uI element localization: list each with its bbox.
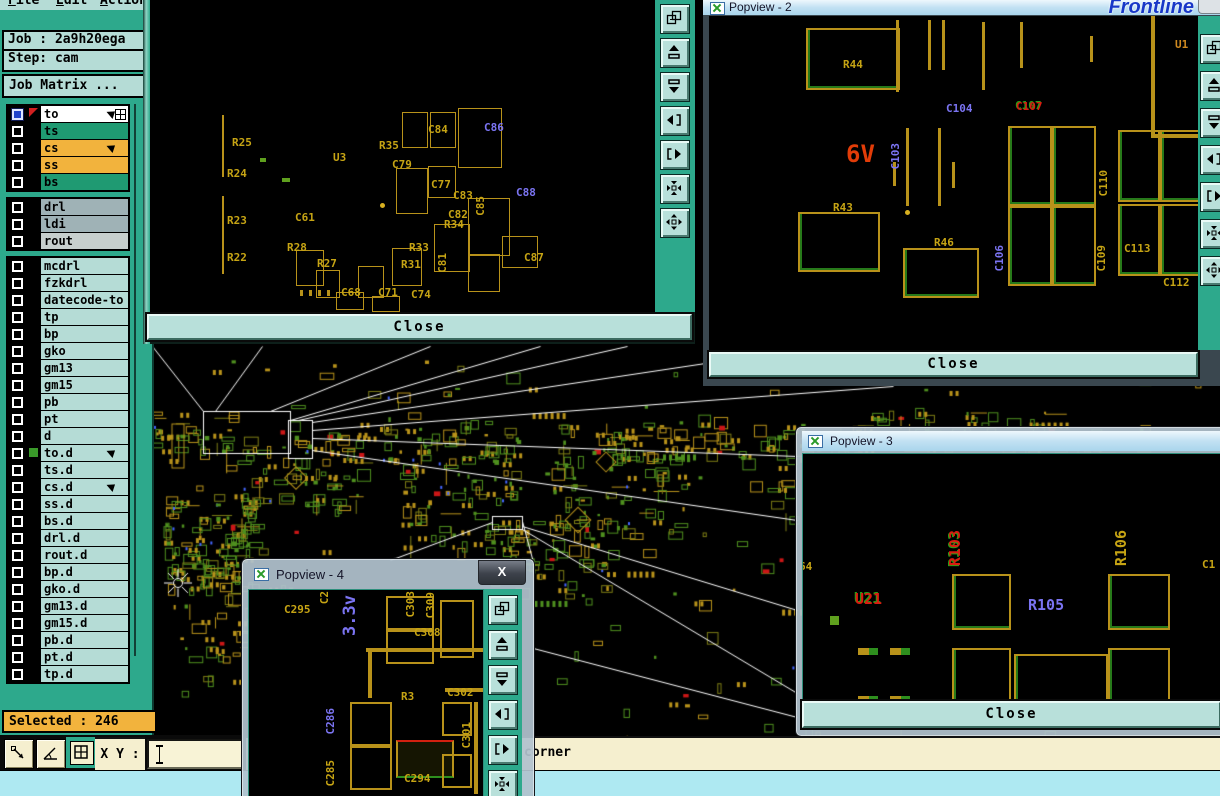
layer-checkbox[interactable] [8,292,27,308]
pan-right-icon [493,740,511,758]
pcb-shape [905,210,910,215]
popview-1-close-button[interactable]: Close [147,314,692,340]
pcb-shape [222,115,224,177]
menu-bar: File Edit Action [0,0,152,10]
copy-window-icon [665,9,683,27]
layer-checkbox[interactable] [8,649,27,665]
layer-checkbox[interactable] [8,530,27,546]
layer-checkbox[interactable] [8,140,27,156]
job-matrix-button[interactable]: Job Matrix ... [2,74,157,98]
layer-checkbox[interactable] [8,157,27,173]
pcb-label: C104 [946,102,973,115]
layer-checkbox[interactable] [8,598,27,614]
layer-name: tp.d [40,666,128,682]
layer-indicator [27,598,40,614]
popview-1-toolbar [655,0,695,312]
layer-checkbox[interactable] [8,428,27,444]
layer-name: ss.d [40,496,128,512]
layer-row-drl[interactable]: drl [8,199,128,216]
zoom-contract-button[interactable] [660,174,690,204]
layer-checkbox[interactable] [8,343,27,359]
pcb-shape [442,754,472,788]
layer-row-gko[interactable]: gko [8,343,128,360]
pcb-label: R22 [227,251,247,264]
layer-checkbox[interactable] [8,615,27,631]
pcb-shape [1160,130,1198,202]
pan-down-button[interactable] [488,665,518,695]
layer-row-tp[interactable]: tp [8,309,128,326]
layer-checkbox[interactable] [8,547,27,563]
layer-indicator [27,199,40,215]
pcb-shape [1014,654,1108,701]
pcb-shape [982,22,985,90]
layer-name: cs [40,140,128,156]
pcb-shape [309,290,312,296]
layer-indicator [27,377,40,393]
grid-icon [115,109,126,120]
layer-indicator [27,479,40,495]
layer-indicator [27,649,40,665]
pcb-shape [896,20,899,92]
pcb-label: 3.3v [340,595,360,636]
layer-checkbox[interactable] [8,216,27,232]
pcb-label: C106 [993,245,1006,272]
pan-right-button[interactable] [660,140,690,170]
window-icon [254,568,269,581]
message-bar [0,770,1220,796]
layer-row-datecode-to[interactable]: datecode-to [8,292,128,309]
copy-window-button[interactable] [660,4,690,34]
layer-row-drl.d[interactable]: drl.d [8,530,128,547]
popview-4-toolbar [484,589,522,796]
layer-name: bp.d [40,564,128,580]
popview-3-canvas[interactable]: 64U21R103R105R106C1 [802,453,1220,701]
layer-indicator [27,360,40,376]
layer-name: datecode-to [40,292,128,308]
layer-row-gm15.d[interactable]: gm15.d [8,615,128,632]
layer-row-ss[interactable]: ss [8,157,128,174]
layer-row-tp.d[interactable]: tp.d [8,666,128,682]
pcb-shape [942,20,945,70]
layer-indicator [27,411,40,427]
layer-name: drl.d [40,530,128,546]
pcb-label: C71 [378,286,398,299]
layer-name: pb [40,394,128,410]
measure-angle-icon [41,744,59,762]
pan-up-icon [665,43,683,61]
layer-row-ldi[interactable]: ldi [8,216,128,233]
pcb-label: C86 [484,121,504,134]
layer-name: gko.d [40,581,128,597]
pcb-label: R35 [379,139,399,152]
layer-name: cs.d [40,479,128,495]
layer-checkbox[interactable] [8,377,27,393]
layer-checkbox[interactable] [8,496,27,512]
pcb-shape [1118,204,1160,276]
layer-row-rout[interactable]: rout [8,233,128,249]
pcb-shape [350,746,392,790]
pan-left-button[interactable] [1200,145,1220,175]
popview-2-title: Popview - 2 [729,0,792,14]
layer-group: totscsssbs [6,104,130,192]
popview-4-canvas[interactable]: C2C295C303C309C3083.3vR3C302C286C301C285… [248,589,484,796]
pan-up-button[interactable] [660,38,690,68]
layer-name: pt.d [40,649,128,665]
layer-checkbox[interactable] [8,632,27,648]
pcb-label: 64 [802,560,812,573]
layer-row-bp.d[interactable]: bp.d [8,564,128,581]
pcb-shape [222,196,224,274]
pcb-label: R28 [287,241,307,254]
quad-view-button[interactable] [66,737,96,768]
pan-down-button[interactable] [1200,108,1220,138]
pcb-label: C2 [318,591,331,604]
layer-indicator [27,216,40,232]
layer-name: rout.d [40,547,128,563]
popview-3-titlebar[interactable]: Popview - 3 [802,431,1220,451]
popview-2-titlebar[interactable]: Popview - 2 Frontline [703,0,1220,15]
layer-row-ts[interactable]: ts [8,123,128,140]
layer-row-cs.d[interactable]: cs.d [8,479,128,496]
pcb-label: C61 [295,211,315,224]
layer-indicator [27,615,40,631]
layer-checkbox[interactable] [8,445,27,461]
xy-input[interactable] [147,739,243,769]
pcb-shape [1160,204,1198,276]
pcb-label: R25 [232,136,252,149]
window-corner-button[interactable] [1198,0,1220,14]
layer-checkbox[interactable] [8,326,27,342]
list-divider [134,104,136,656]
layer-row-bp[interactable]: bp [8,326,128,343]
layer-name: bs [40,174,128,190]
pcb-shape [458,108,502,168]
layer-name: rout [40,233,128,249]
layer-row-to[interactable]: to [8,106,128,123]
pan-up-button[interactable] [1200,71,1220,101]
pcb-shape [1020,22,1023,68]
pcb-shape [798,212,880,272]
pan-up-button[interactable] [488,630,518,660]
pcb-shape [1052,126,1096,206]
layer-indicator [27,564,40,580]
quad-view-icon [72,743,90,761]
pcb-label: C83 [453,189,473,202]
layer-indicator [27,462,40,478]
pcb-shape [906,128,909,206]
layer-indicator [27,666,40,682]
zoom-contract-icon [665,179,683,197]
pcb-label: C85 [474,196,487,216]
popview-1-window: R25R24R23R22R28R27C61C68U3R35C84C86C79C7… [143,0,695,344]
layer-row-fzkdrl[interactable]: fzkdrl [8,275,128,292]
pcb-shape [468,254,500,292]
pcb-shape [903,248,979,298]
zoom-contract-button[interactable] [488,770,518,796]
layer-name: bs.d [40,513,128,529]
popview-4-titlebar[interactable]: Popview - 4 [248,563,474,587]
menu-action[interactable]: Action [100,0,147,8]
pcb-label: C107 [1016,100,1043,113]
pan-left-button[interactable] [488,700,518,730]
pcb-label: R31 [401,258,421,271]
popview-3-close-button[interactable]: Close [802,701,1220,728]
measure-distance-button[interactable] [4,739,34,769]
layer-checkbox[interactable] [8,479,27,495]
layer-name: gm13.d [40,598,128,614]
pcb-label: C303 [404,591,417,618]
pcb-shape [1151,134,1198,138]
pcb-label: R33 [409,241,429,254]
layer-indicator [27,581,40,597]
layer-name: mcdrl [40,258,128,274]
text-caret [156,745,163,764]
layer-row-pt[interactable]: pt [8,411,128,428]
layer-indicator [27,309,40,325]
pcb-shape [282,178,290,182]
copy-window-button[interactable] [488,595,518,625]
window-icon [710,2,725,15]
pcb-shape [396,168,428,214]
copy-window-icon [1205,39,1220,57]
sidebar: File Edit Action Job : 2a9h20ega Step: c… [0,0,154,796]
layer-checkbox[interactable] [8,309,27,325]
layer-row-ts.d[interactable]: ts.d [8,462,128,479]
layer-row-pb.d[interactable]: pb.d [8,632,128,649]
menu-file[interactable]: File [8,0,39,8]
layer-name: ss [40,157,128,173]
pcb-label: R23 [227,214,247,227]
pcb-label: C88 [516,186,536,199]
popview-2-close-button[interactable]: Close [709,352,1198,377]
pcb-label: C294 [404,772,431,785]
pcb-label: R24 [227,167,247,180]
pan-left-icon [1205,150,1220,168]
pcb-label: C112 [1163,276,1190,289]
layer-checkbox[interactable] [8,411,27,427]
layer-checkbox[interactable] [8,199,27,215]
pcb-shape [327,290,330,296]
pcb-label: C74 [411,288,431,301]
zoom-expand-button[interactable] [1200,256,1220,286]
pan-right-button[interactable] [1200,182,1220,212]
job-panel: Job : 2a9h20ega Step: cam [2,30,154,72]
hand-icon [105,448,115,458]
layer-name: gm13 [40,360,128,376]
layer-row-bs[interactable]: bs [8,174,128,190]
pan-down-icon [1205,113,1220,131]
layer-name: tp [40,309,128,325]
window-border [143,0,150,344]
layer-row-rout.d[interactable]: rout.d [8,547,128,564]
pan-left-button[interactable] [660,106,690,136]
pcb-label: R34 [444,218,464,231]
pan-down-icon [665,77,683,95]
pcb-label: 6V [846,140,875,168]
zoom-contract-button[interactable] [1200,219,1220,249]
hand-icon [105,109,115,119]
layer-group: drlldirout [6,197,130,251]
layer-indicator [27,292,40,308]
layer-checkbox[interactable] [8,123,27,139]
layer-name: fzkdrl [40,275,128,291]
pan-up-icon [1205,76,1220,94]
pcb-label: R103 [946,530,964,566]
layer-checkbox[interactable] [8,174,27,190]
pcb-shape [928,20,931,70]
pcb-label: U3 [333,151,346,164]
layer-row-gm13.d[interactable]: gm13.d [8,598,128,615]
layer-name: ts.d [40,462,128,478]
zoom-expand-button[interactable] [660,208,690,238]
pan-down-button[interactable] [660,72,690,102]
pcb-label: C285 [324,760,337,787]
layer-indicator [27,632,40,648]
pcb-label: C309 [424,592,437,619]
layer-name: pt [40,411,128,427]
measure-distance-icon [9,744,27,762]
layer-row-pb[interactable]: pb [8,394,128,411]
pcb-shape [1108,574,1170,630]
layer-name: gko [40,343,128,359]
hand-icon [105,143,115,153]
zoom-contract-icon [493,775,511,793]
layer-checkbox[interactable] [8,275,27,291]
copy-window-button[interactable] [1200,34,1220,64]
layer-indicator [27,106,40,122]
layer-checkbox[interactable] [8,513,27,529]
xy-label: X Y : [95,737,145,772]
pcb-label: C109 [1095,245,1108,272]
pan-right-icon [665,145,683,163]
layer-row-cs[interactable]: cs [8,140,128,157]
pcb-shape [402,112,428,148]
pcb-label: R44 [843,58,863,71]
layer-row-pt.d[interactable]: pt.d [8,649,128,666]
pcb-shape [1090,36,1093,62]
popview-3-window: Popview - 3 64U21R103R105R106C1 Close [795,426,1220,737]
layer-indicator [27,547,40,563]
layer-checkbox[interactable] [8,581,27,597]
job-name: Job : 2a9h20ega [4,32,152,51]
layer-row-ss.d[interactable]: ss.d [8,496,128,513]
layer-checkbox[interactable] [8,564,27,580]
pcb-label: R3 [401,690,414,703]
layer-indicator [27,445,40,461]
layer-indicator [27,275,40,291]
pcb-label: C68 [341,286,361,299]
pcb-label: C308 [414,626,441,639]
pcb-label: C87 [524,251,544,264]
layer-checkbox[interactable] [8,233,27,249]
popview-2-window: Popview - 2 Frontline R44C104C1076VC103R… [703,0,1220,386]
layer-row-bs.d[interactable]: bs.d [8,513,128,530]
zoom-expand-icon [665,213,683,231]
layer-name: bp [40,326,128,342]
layer-row-gm15[interactable]: gm15 [8,377,128,394]
layer-name: to [40,106,128,122]
layer-checkbox[interactable] [8,360,27,376]
layer-indicator [27,513,40,529]
layer-name: to.d [40,445,128,461]
layer-row-gko.d[interactable]: gko.d [8,581,128,598]
pcb-label: C81 [436,253,449,273]
pcb-shape [1052,206,1096,286]
pcb-shape [1008,206,1052,286]
layer-checkbox[interactable] [8,394,27,410]
layer-name: pb.d [40,632,128,648]
pcb-label: C113 [1124,242,1151,255]
pcb-shape [1118,130,1160,202]
pcb-shape [1008,126,1052,206]
layer-name: gm15.d [40,615,128,631]
layer-checkbox[interactable] [8,462,27,478]
pcb-shape [952,162,955,188]
pcb-label: R106 [1112,530,1130,566]
pcb-label: U21 [855,590,882,608]
active-layer-marker [29,448,38,457]
popview-4-window: Popview - 4 X C2C295C303C309C3083.3vR3C3… [241,558,535,796]
layer-row-mcdrl[interactable]: mcdrl [8,258,128,275]
pcb-label: C1 [1202,558,1215,571]
pcb-shape [318,290,321,296]
pcb-shape [380,203,385,208]
menu-edit[interactable]: Edit [56,0,87,8]
pcb-label: R105 [1028,596,1064,614]
layer-indicator [27,157,40,173]
pcb-label: C77 [431,178,451,191]
pcb-label: C302 [447,686,474,699]
layer-name: d [40,428,128,444]
pcb-label: C295 [284,603,311,616]
layer-indicator [27,326,40,342]
popview-1-canvas[interactable]: R25R24R23R22R28R27C61C68U3R35C84C86C79C7… [150,0,655,312]
layer-indicator [27,174,40,190]
popview-4-close-x-button[interactable]: X [478,560,526,585]
layer-name: ts [40,123,128,139]
copy-window-icon [493,600,511,618]
layer-row-to.d[interactable]: to.d [8,445,128,462]
pcb-label: C110 [1097,170,1110,197]
popview-2-canvas[interactable]: R44C104C1076VC103R43R46C106C110C109C113C… [709,16,1198,350]
pcb-shape [260,158,266,162]
popview-4-title: Popview - 4 [276,567,344,582]
layer-row-d[interactable]: d [8,428,128,445]
pan-up-icon [493,635,511,653]
popview-2-toolbar [1198,16,1220,350]
measure-angle-button[interactable] [36,739,66,769]
pcb-shape [952,648,1011,701]
pcb-shape [1108,648,1170,701]
pcb-label: U1 [1175,38,1188,51]
layer-name: gm15 [40,377,128,393]
pcb-label: R27 [317,257,337,270]
layer-checkbox[interactable] [8,258,27,274]
layer-checkbox[interactable] [8,106,27,122]
pcb-label: C103 [889,143,902,170]
layer-indicator [27,496,40,512]
pan-right-button[interactable] [488,735,518,765]
pcb-label: R43 [833,201,853,214]
layer-indicator [27,428,40,444]
layer-indicator [27,530,40,546]
layer-checkbox[interactable] [8,666,27,682]
pcb-shape [474,702,478,794]
select-arrow-icon [29,108,38,117]
pcb-label: C79 [392,158,412,171]
application-window: File Edit Action Job : 2a9h20ega Step: c… [0,0,1220,796]
layer-row-gm13[interactable]: gm13 [8,360,128,377]
